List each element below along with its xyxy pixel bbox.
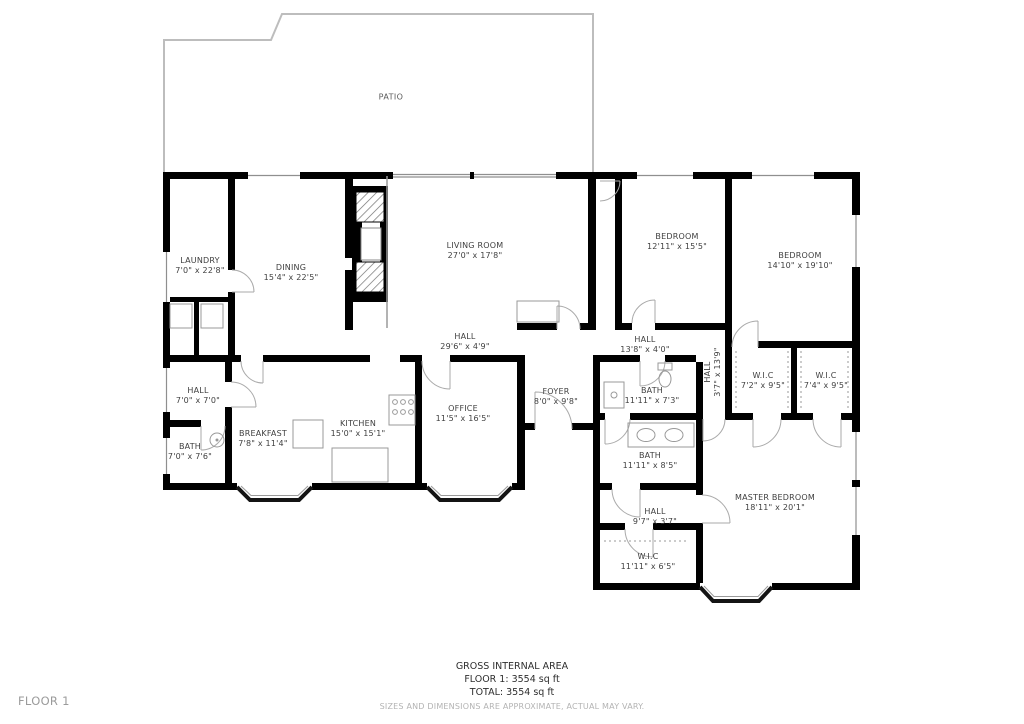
floor-area-line: FLOOR 1: 3554 sq ft bbox=[0, 673, 1024, 686]
fixtures bbox=[170, 301, 848, 541]
windows bbox=[163, 172, 860, 535]
total-area-line: TOTAL: 3554 sq ft bbox=[0, 686, 1024, 699]
floor-indicator: FLOOR 1 bbox=[18, 694, 70, 708]
patio-label: PATIO bbox=[379, 93, 404, 102]
floor-plan-drawing bbox=[0, 0, 1024, 724]
floor-plan-page: PATIO LAUNDRY 7'0" x 22'8" DINING 15'4" … bbox=[0, 0, 1024, 724]
gross-area-summary: GROSS INTERNAL AREA FLOOR 1: 3554 sq ft … bbox=[0, 660, 1024, 713]
dimensions-disclaimer: SIZES AND DIMENSIONS ARE APPROXIMATE, AC… bbox=[0, 700, 1024, 713]
gross-area-title: GROSS INTERNAL AREA bbox=[0, 660, 1024, 673]
walls bbox=[163, 172, 860, 590]
